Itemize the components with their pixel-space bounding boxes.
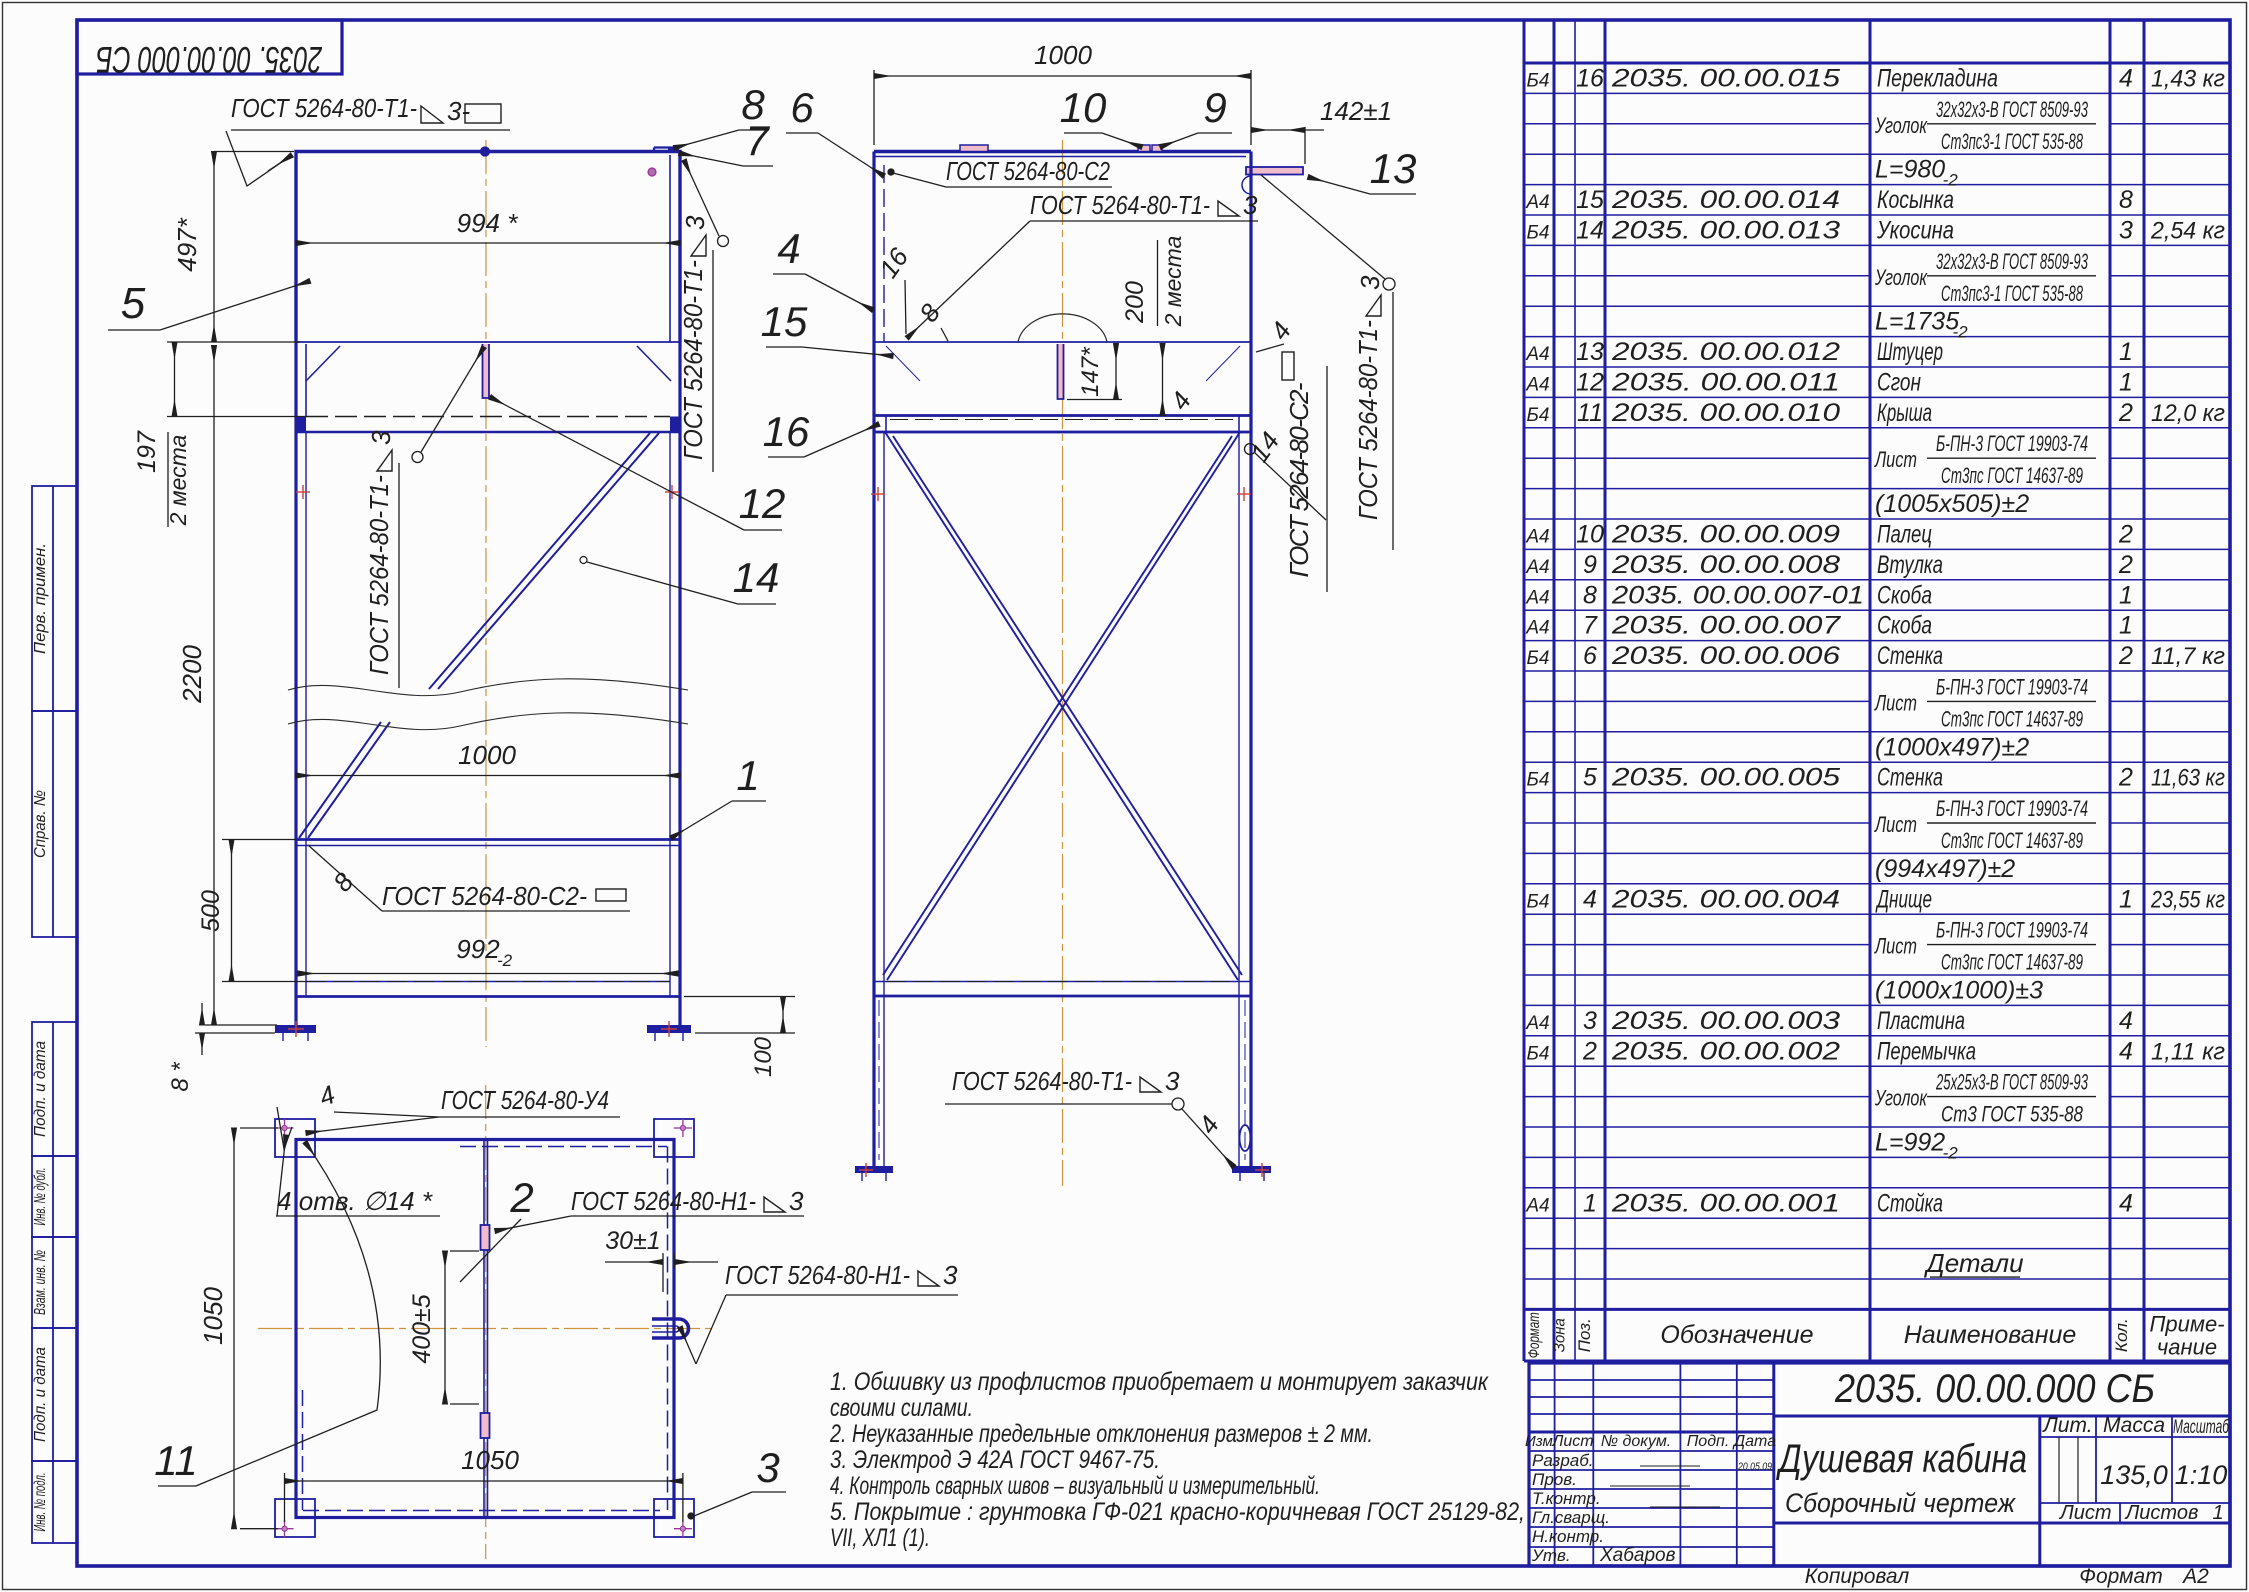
svg-text:1050: 1050 <box>461 1445 519 1475</box>
svg-text:11,7 кг: 11,7 кг <box>2151 643 2225 670</box>
svg-text:4: 4 <box>2119 1007 2133 1035</box>
svg-text:16: 16 <box>763 408 810 455</box>
svg-text:1,11 кг: 1,11 кг <box>2151 1038 2225 1065</box>
svg-text:3: 3 <box>366 430 396 445</box>
svg-text:2035. 00.00.005: 2035. 00.00.005 <box>1611 764 1840 792</box>
svg-text:497*: 497* <box>172 217 202 271</box>
svg-text:15: 15 <box>761 298 808 345</box>
svg-text:11: 11 <box>154 1437 198 1484</box>
svg-text:2035. 00.00.015: 2035. 00.00.015 <box>1611 65 1840 93</box>
svg-text:Перекладина: Перекладина <box>1877 65 1998 93</box>
svg-text:Б-ПН-3 ГОСТ 19903-74: Б-ПН-3 ГОСТ 19903-74 <box>1936 918 2088 943</box>
svg-text:2035. 00.00.010: 2035. 00.00.010 <box>1611 399 1840 427</box>
svg-text:Перв. примен.: Перв. примен. <box>32 543 49 654</box>
svg-text:Лист: Лист <box>1874 447 1917 472</box>
svg-text:Ст3пс ГОСТ 14637-89: Ст3пс ГОСТ 14637-89 <box>1941 828 2083 853</box>
svg-text:2035. 00.00.002: 2035. 00.00.002 <box>1611 1037 1840 1065</box>
svg-text:1000: 1000 <box>458 740 516 770</box>
svg-text:Лист: Лист <box>2058 1502 2112 1524</box>
svg-text:2: 2 <box>2118 399 2133 427</box>
svg-text:147*: 147* <box>1077 347 1104 397</box>
svg-text:Ст3пс ГОСТ 14637-89: Ст3пс ГОСТ 14637-89 <box>1941 950 2083 975</box>
svg-text:Стенка: Стенка <box>1877 642 1943 670</box>
svg-text:Взам. инв. №: Взам. инв. № <box>32 1250 49 1315</box>
svg-text:200: 200 <box>1121 281 1149 324</box>
svg-text:500: 500 <box>197 890 225 932</box>
svg-text:6: 6 <box>790 84 814 131</box>
svg-text:3: 3 <box>756 1444 779 1491</box>
svg-text:Б-ПН-3 ГОСТ 19903-74: Б-ПН-3 ГОСТ 19903-74 <box>1936 796 2088 821</box>
svg-text:Обозначение: Обозначение <box>1660 1321 1813 1349</box>
svg-text:Уголок: Уголок <box>1874 265 1928 290</box>
svg-text:2035. 00.00.007: 2035. 00.00.007 <box>1611 612 1842 640</box>
svg-text:ГОСТ 5264-80-У4: ГОСТ 5264-80-У4 <box>441 1085 609 1115</box>
svg-text:4 отв. ∅14 *: 4 отв. ∅14 * <box>277 1186 433 1216</box>
svg-text:2. Неуказанные предельные откл: 2. Неуказанные предельные отклонения раз… <box>829 1420 1373 1448</box>
svg-text:ГОСТ 5264-80-Т1-: ГОСТ 5264-80-Т1- <box>1030 190 1210 220</box>
svg-text:197: 197 <box>133 430 161 473</box>
svg-text:4: 4 <box>2119 1189 2133 1217</box>
svg-text:А4: А4 <box>1525 527 1549 548</box>
svg-text:Масса: Масса <box>2103 1414 2165 1437</box>
svg-text:1:10: 1:10 <box>2175 1460 2228 1490</box>
svg-text:3: 3 <box>789 1186 804 1216</box>
svg-text:13: 13 <box>1370 145 1417 192</box>
svg-text:Поз.: Поз. <box>1575 1318 1594 1352</box>
svg-text:Ст3пс3-1 ГОСТ 535-88: Ст3пс3-1 ГОСТ 535-88 <box>1941 281 2083 306</box>
svg-text:2: 2 <box>2118 642 2133 670</box>
svg-text:1: 1 <box>2119 369 2133 397</box>
svg-text:Перемычка: Перемычка <box>1877 1037 1976 1065</box>
svg-text:ГОСТ 5264-80-Т1-: ГОСТ 5264-80-Т1- <box>1353 320 1383 520</box>
svg-text:11,63 кг: 11,63 кг <box>2151 765 2225 792</box>
svg-text:2035. 00.00.007-01: 2035. 00.00.007-01 <box>1611 581 1864 609</box>
svg-text:Втулка: Втулка <box>1877 551 1943 579</box>
svg-text:Зона: Зона <box>1552 1318 1569 1352</box>
svg-text:10: 10 <box>1576 521 1604 549</box>
svg-text:2035. 00.00.000 СБ: 2035. 00.00.000 СБ <box>96 39 323 80</box>
svg-text:Б-ПН-3 ГОСТ 19903-74: Б-ПН-3 ГОСТ 19903-74 <box>1936 674 2088 699</box>
svg-text:чание: чание <box>2157 1334 2217 1359</box>
svg-text:14: 14 <box>1576 217 1604 245</box>
svg-text:12: 12 <box>1576 369 1604 397</box>
svg-text:VII, ХЛ1 (1).: VII, ХЛ1 (1). <box>830 1524 930 1552</box>
svg-text:4: 4 <box>777 225 800 272</box>
svg-text:5: 5 <box>121 279 146 328</box>
svg-text:3: 3 <box>1243 190 1258 220</box>
svg-text:3. Электрод Э 42А ГОСТ 9467-75: 3. Электрод Э 42А ГОСТ 9467-75. <box>830 1446 1160 1474</box>
svg-text:Уголок: Уголок <box>1874 113 1928 138</box>
svg-text:L=980: L=980 <box>1875 156 1945 184</box>
svg-text:2035. 00.00.000 СБ: 2035. 00.00.000 СБ <box>1834 1367 2155 1411</box>
svg-text:1: 1 <box>736 752 759 799</box>
svg-text:2035. 00.00.013: 2035. 00.00.013 <box>1611 217 1840 245</box>
svg-text:А2: А2 <box>2181 1565 2209 1588</box>
svg-text:Лист: Лист <box>1551 1433 1593 1450</box>
svg-text:2: 2 <box>2118 764 2133 792</box>
svg-text:Лит.: Лит. <box>2041 1414 2092 1437</box>
svg-text:Сборочный чертеж: Сборочный чертеж <box>1785 1488 2016 1518</box>
svg-text:8: 8 <box>2119 186 2133 214</box>
svg-text:3: 3 <box>943 1260 958 1290</box>
svg-text:8 *: 8 * <box>167 1062 194 1092</box>
svg-text:Б4: Б4 <box>1527 770 1550 791</box>
svg-text:Штуцер: Штуцер <box>1877 338 1943 366</box>
svg-text:Б-ПН-3 ГОСТ 19903-74: Б-ПН-3 ГОСТ 19903-74 <box>1936 431 2088 456</box>
svg-text:Лист: Лист <box>1874 934 1917 959</box>
svg-text:1: 1 <box>2119 338 2133 366</box>
svg-text:13: 13 <box>1576 338 1604 366</box>
svg-text:4: 4 <box>2119 65 2133 93</box>
svg-text:ГОСТ 5264-80-Т1-: ГОСТ 5264-80-Т1- <box>231 93 417 123</box>
svg-text:ГОСТ 5264-80-Т1-: ГОСТ 5264-80-Т1- <box>678 260 708 460</box>
svg-text:ГОСТ 5264-80-С2-: ГОСТ 5264-80-С2- <box>382 881 587 911</box>
svg-text:ГОСТ 5264-80-Н1-: ГОСТ 5264-80-Н1- <box>725 1260 910 1290</box>
svg-text:2: 2 <box>509 1174 533 1221</box>
svg-text:2035. 00.00.001: 2035. 00.00.001 <box>1611 1189 1840 1217</box>
svg-text:6: 6 <box>1583 642 1597 670</box>
svg-text:А4: А4 <box>1525 557 1549 578</box>
svg-text:Т.контр.: Т.контр. <box>1532 1489 1601 1508</box>
svg-text:Листов: Листов <box>2124 1502 2199 1524</box>
svg-text:А4: А4 <box>1525 192 1549 213</box>
svg-text:Инв. № подл.: Инв. № подл. <box>32 1473 49 1532</box>
svg-text:ГОСТ 5264-80-Н1-: ГОСТ 5264-80-Н1- <box>571 1186 756 1216</box>
svg-text:А4: А4 <box>1525 375 1549 396</box>
svg-text:1: 1 <box>2119 581 2133 609</box>
svg-text:142±1: 142±1 <box>1320 96 1392 126</box>
svg-text:Подп. и дата: Подп. и дата <box>32 1041 49 1137</box>
svg-text:Пластина: Пластина <box>1877 1007 1965 1035</box>
svg-text:3: 3 <box>2119 217 2133 245</box>
svg-text:Крыша: Крыша <box>1877 399 1932 427</box>
svg-text:2 места: 2 места <box>1160 236 1186 328</box>
svg-text:5: 5 <box>1583 764 1597 792</box>
svg-text:7: 7 <box>1583 612 1598 640</box>
svg-text:№ докум.: № докум. <box>1601 1433 1671 1450</box>
svg-text:Б4: Б4 <box>1527 223 1550 244</box>
svg-text:2 места: 2 места <box>165 435 191 527</box>
svg-text:4. Контроль сварных швов – виз: 4. Контроль сварных швов – визуальный и … <box>830 1472 1320 1500</box>
svg-text:20.05.09: 20.05.09 <box>1737 1461 1772 1473</box>
svg-text:Душевая кабина: Душевая кабина <box>1776 1437 2027 1481</box>
svg-text:Копировал: Копировал <box>1805 1565 1910 1588</box>
svg-text:2035. 00.00.011: 2035. 00.00.011 <box>1611 369 1840 397</box>
svg-text:Лист: Лист <box>1874 812 1917 837</box>
svg-text:Ст3пс ГОСТ 14637-89: Ст3пс ГОСТ 14637-89 <box>1941 463 2083 488</box>
svg-text:Ст3пс ГОСТ 14637-89: Ст3пс ГОСТ 14637-89 <box>1941 706 2083 731</box>
svg-text:Уголок: Уголок <box>1874 1086 1928 1111</box>
svg-text:15: 15 <box>1576 186 1604 214</box>
svg-text:1: 1 <box>2119 885 2133 913</box>
svg-text:Дата: Дата <box>1732 1433 1776 1450</box>
svg-text:ГОСТ 5264-80-Т1-: ГОСТ 5264-80-Т1- <box>952 1066 1132 1096</box>
svg-text:А4: А4 <box>1525 587 1549 608</box>
svg-text:А4: А4 <box>1525 344 1549 365</box>
svg-text:2035. 00.00.012: 2035. 00.00.012 <box>1611 338 1840 366</box>
svg-text:992: 992 <box>456 934 500 964</box>
svg-text:1. Обшивку из профлистов пр: 1. Обшивку из профлистов приобретает и м… <box>830 1368 1489 1396</box>
svg-text:Справ. №: Справ. № <box>32 790 49 858</box>
svg-text:2: 2 <box>1582 1037 1597 1065</box>
svg-text:(994х497)±2: (994х497)±2 <box>1875 855 2015 883</box>
svg-text:2035. 00.00.014: 2035. 00.00.014 <box>1611 186 1840 214</box>
svg-text:2035. 00.00.003: 2035. 00.00.003 <box>1611 1007 1840 1035</box>
svg-text:Б4: Б4 <box>1527 1043 1550 1064</box>
svg-text:-2: -2 <box>1943 1144 1959 1163</box>
svg-text:9: 9 <box>1203 84 1226 131</box>
svg-text:А4: А4 <box>1525 618 1549 639</box>
svg-text:Масштаб: Масштаб <box>2173 1417 2230 1438</box>
svg-text:14: 14 <box>733 554 780 601</box>
svg-text:своими силами.: своими силами. <box>830 1394 973 1422</box>
svg-text:8: 8 <box>1583 581 1597 609</box>
svg-text:Стойка: Стойка <box>1877 1189 1943 1217</box>
svg-text:2200: 2200 <box>177 645 207 704</box>
svg-text:Б4: Б4 <box>1527 891 1550 912</box>
svg-text:А4: А4 <box>1525 1195 1549 1216</box>
svg-text:25х25х3-В ГОСТ 8509-93: 25х25х3-В ГОСТ 8509-93 <box>1935 1070 2088 1095</box>
svg-text:4: 4 <box>1583 885 1597 913</box>
svg-text:1: 1 <box>1583 1189 1597 1217</box>
svg-text:3: 3 <box>680 215 710 230</box>
svg-text:Б4: Б4 <box>1527 648 1550 669</box>
svg-text:2035. 00.00.009: 2035. 00.00.009 <box>1611 521 1840 549</box>
svg-text:Косынка: Косынка <box>1877 186 1954 214</box>
svg-text:10: 10 <box>1060 84 1107 131</box>
svg-text:4: 4 <box>2119 1037 2133 1065</box>
svg-text:Наименование: Наименование <box>1904 1321 2077 1349</box>
svg-text:Пров.: Пров. <box>1532 1470 1577 1489</box>
svg-text:2,54 кг: 2,54 кг <box>2150 218 2225 245</box>
svg-text:32х32х3-В ГОСТ 8509-93: 32х32х3-В ГОСТ 8509-93 <box>1936 249 2088 274</box>
svg-text:Подп. и дата: Подп. и дата <box>32 1347 49 1442</box>
svg-text:7: 7 <box>745 117 770 164</box>
svg-text:2: 2 <box>2118 521 2133 549</box>
svg-text:12: 12 <box>739 480 786 527</box>
svg-text:Ст3 ГОСТ 535-88: Ст3 ГОСТ 535-88 <box>1941 1102 2084 1127</box>
svg-text:Формат: Формат <box>2079 1565 2162 1588</box>
svg-text:Кол.: Кол. <box>2112 1318 2131 1352</box>
svg-text:Скоба: Скоба <box>1877 612 1932 640</box>
svg-text:А4: А4 <box>1525 1013 1549 1034</box>
svg-text:1000: 1000 <box>1034 40 1092 70</box>
svg-text:Сгон: Сгон <box>1877 369 1921 397</box>
svg-text:Б4: Б4 <box>1527 405 1550 426</box>
svg-text:Детали: Детали <box>1923 1248 2023 1278</box>
svg-text:23,55 кг: 23,55 кг <box>2150 886 2225 913</box>
svg-text:(1000х497)±2: (1000х497)±2 <box>1875 733 2029 761</box>
svg-text:Формат: Формат <box>1526 1312 1543 1358</box>
svg-text:-2: -2 <box>497 951 513 970</box>
svg-text:(1005х505)±2: (1005х505)±2 <box>1875 490 2029 518</box>
svg-text:Приме-: Приме- <box>2149 1311 2224 1336</box>
svg-text:1,43 кг: 1,43 кг <box>2151 66 2225 93</box>
svg-text:2035. 00.00.004: 2035. 00.00.004 <box>1611 885 1840 913</box>
svg-text:Подп.: Подп. <box>1687 1433 1730 1450</box>
svg-text:3-: 3- <box>447 96 470 126</box>
svg-text:135,0: 135,0 <box>2100 1460 2168 1490</box>
svg-text:Б4: Б4 <box>1527 71 1550 92</box>
svg-text:12,0 кг: 12,0 кг <box>2151 400 2225 427</box>
svg-text:2035. 00.00.006: 2035. 00.00.006 <box>1611 642 1840 670</box>
svg-text:Разраб.: Разраб. <box>1532 1451 1594 1470</box>
svg-text:9: 9 <box>1583 551 1597 579</box>
svg-text:Днище: Днище <box>1875 885 1932 913</box>
svg-text:30±1: 30±1 <box>605 1227 660 1255</box>
svg-text:3: 3 <box>1583 1007 1597 1035</box>
svg-text:2: 2 <box>2118 551 2133 579</box>
svg-text:32х32х3-В ГОСТ 8509-93: 32х32х3-В ГОСТ 8509-93 <box>1936 97 2088 122</box>
svg-text:Укосина: Укосина <box>1876 217 1954 245</box>
svg-text:L=992: L=992 <box>1875 1129 1945 1157</box>
svg-text:100: 100 <box>750 1036 777 1077</box>
svg-text:Н.контр.: Н.контр. <box>1532 1527 1604 1546</box>
svg-text:L=1735: L=1735 <box>1875 308 1959 336</box>
svg-text:3: 3 <box>1165 1066 1180 1096</box>
svg-text:Хабаров: Хабаров <box>1599 1545 1676 1566</box>
svg-text:994 *: 994 * <box>457 208 519 238</box>
svg-text:3: 3 <box>1355 275 1385 290</box>
svg-text:16: 16 <box>1576 65 1604 93</box>
svg-text:Инв. № дубл.: Инв. № дубл. <box>32 1168 49 1226</box>
svg-text:Гл.сварщ.: Гл.сварщ. <box>1532 1508 1610 1527</box>
svg-text:ГОСТ 5264-80-Т1-: ГОСТ 5264-80-Т1- <box>364 475 394 675</box>
svg-text:Палец: Палец <box>1877 521 1932 549</box>
svg-text:1: 1 <box>2212 1502 2223 1524</box>
svg-text:Скоба: Скоба <box>1877 581 1932 609</box>
svg-text:5. Покрытие : грунтовка ГФ-021: 5. Покрытие : грунтовка ГФ-021 красно-ко… <box>830 1498 1525 1526</box>
svg-text:1: 1 <box>2119 612 2133 640</box>
svg-text:400±5: 400±5 <box>408 1294 436 1363</box>
svg-text:2035. 00.00.008: 2035. 00.00.008 <box>1611 551 1840 579</box>
svg-text:ГОСТ 5264-80-С2-: ГОСТ 5264-80-С2- <box>1284 382 1314 577</box>
svg-text:11: 11 <box>1577 399 1603 427</box>
svg-text:-2: -2 <box>1953 323 1969 342</box>
svg-text:Ст3пс3-1 ГОСТ 535-88: Ст3пс3-1 ГОСТ 535-88 <box>1941 129 2083 154</box>
svg-text:(1000х1000)±3: (1000х1000)±3 <box>1875 977 2043 1005</box>
svg-text:Лист: Лист <box>1874 690 1917 715</box>
svg-text:1050: 1050 <box>198 1287 228 1345</box>
svg-text:ГОСТ 5264-80-С2: ГОСТ 5264-80-С2 <box>946 156 1110 186</box>
svg-text:Стенка: Стенка <box>1877 764 1943 792</box>
svg-text:Утв.: Утв. <box>1531 1546 1571 1565</box>
